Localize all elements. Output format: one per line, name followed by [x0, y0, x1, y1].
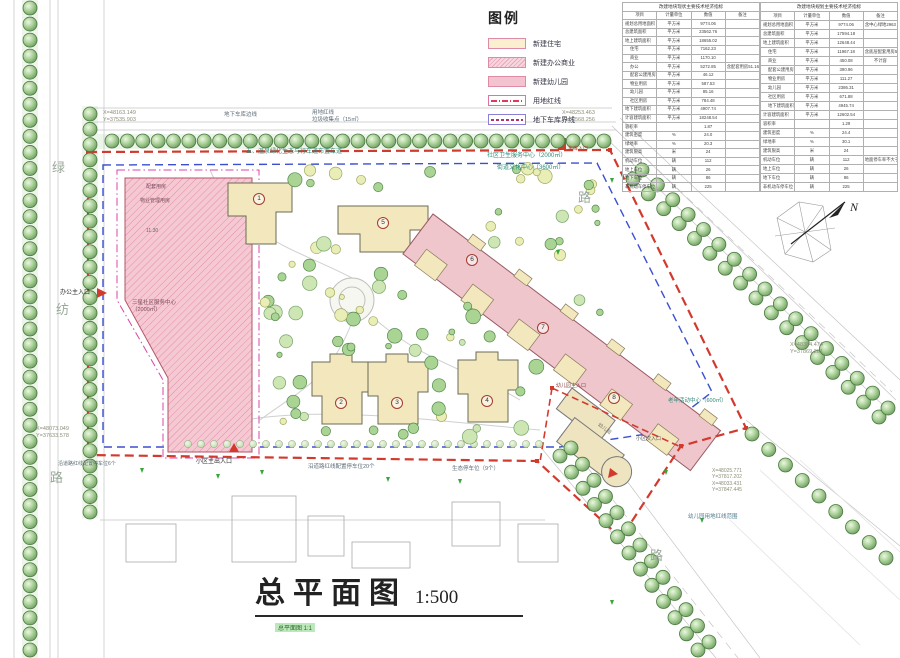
- building-number: 5: [377, 217, 389, 229]
- building-number: 7: [537, 322, 549, 334]
- legend: 图例 新建住宅 新建办公商业 新建幼儿园 用地红线 地下车库界线: [488, 8, 618, 129]
- health-center-label: 社区卫生服务中心（2000㎡）: [487, 153, 566, 161]
- culture-center-label: 街道文化中心（3600㎡）: [497, 165, 564, 173]
- road-name-char: 绿: [52, 160, 65, 176]
- neighbour-buildings: [126, 496, 558, 568]
- office-swatch: [488, 57, 526, 68]
- drawing-title-block: 总平面图 1:500 总平面图 1:1: [255, 568, 535, 635]
- redline-swatch: [488, 95, 526, 106]
- legend-label: 新建住宅: [533, 39, 561, 49]
- coordinate-label: X=48163.149 Y=37535.903: [103, 110, 136, 124]
- elderly-center-label: 老年活动中心（600㎡）: [668, 398, 727, 405]
- building-number: 4: [481, 395, 493, 407]
- building-number: 2: [335, 397, 347, 409]
- indicator-table-existing: 改建地块现状主要技术经济指标项目计量单位数值备注规划总用地面积平方米9774.0…: [622, 2, 760, 192]
- kindergarten-redline-label: 幼儿园用地红线范围: [688, 514, 738, 521]
- kindergarten-entry-label: 幼儿园主入口: [556, 383, 586, 389]
- legend-item-kindergarten: 新建幼儿园: [488, 72, 618, 91]
- drawing-title: 总平面图: [255, 568, 407, 612]
- building-number: 8: [608, 392, 620, 404]
- building-number: 6: [466, 254, 478, 266]
- office-entry-label: 办公主入口: [60, 290, 90, 298]
- coordinate-label: X=48384.474 Y=37869.261: [790, 342, 823, 356]
- side-entry-label: 小区次入口: [636, 436, 661, 442]
- parking6-label: 沿道路红线配置停车位6个: [58, 461, 116, 467]
- fire-lane-note: 五、温泉绿化生态与行车道布置车道: [246, 149, 342, 157]
- north-arrow: [775, 202, 845, 262]
- road-name-char: 路: [650, 548, 663, 564]
- residential-swatch: [488, 38, 526, 49]
- community-center-label: 三星社区服务中心 （2000㎡）: [132, 300, 176, 314]
- hatch-texture: [730, 460, 900, 645]
- legend-label: 新建办公商业: [533, 58, 575, 68]
- elevation-number: 11.30: [146, 228, 158, 234]
- legend-item-redline: 用地红线: [488, 91, 618, 110]
- legend-item-garage: 地下车库界线: [488, 110, 618, 129]
- property-room-label: 物业管理用房: [140, 198, 170, 204]
- kindergarten-swatch: [488, 76, 526, 87]
- building-number: 1: [253, 193, 265, 205]
- office-room-label: 配套用房: [146, 184, 166, 190]
- coordinate-label: X=48253.463 Y=37568.256: [562, 110, 595, 124]
- garage-entry-label: 车库入口: [568, 146, 588, 152]
- road-name-char: 纺: [56, 302, 69, 318]
- legend-item-residential: 新建住宅: [488, 34, 618, 53]
- drawing-subtitle: 总平面图 1:1: [275, 623, 315, 632]
- road-name-char: 路: [50, 470, 63, 486]
- north-label: N: [850, 200, 858, 215]
- site-plan-sheet: 图例 新建住宅 新建办公商业 新建幼儿园 用地红线 地下车库界线 改建地块现状主…: [0, 0, 900, 658]
- garage-line-swatch: [488, 114, 526, 125]
- legend-label: 新建幼儿园: [533, 77, 568, 87]
- indicator-table-planned: 改建地块规划主要技术经济指标项目计量单位数值备注规划总用地面积平方米9774.0…: [760, 2, 898, 192]
- redline-garbage-label: 用地红线 垃圾收集点（15㎡）: [312, 110, 362, 124]
- indicator-tables: 改建地块现状主要技术经济指标项目计量单位数值备注规划总用地面积平方米9774.0…: [622, 2, 898, 192]
- coordinate-label: X=48025.771 Y=37817.202 X=48033.431 Y=37…: [712, 468, 742, 493]
- road-name-char: 路: [578, 190, 591, 206]
- main-entry-label: 小区主出入口: [196, 459, 232, 467]
- office-commercial-building: [125, 178, 252, 452]
- legend-label: 用地红线: [533, 96, 561, 106]
- eco-parking-label: 生态停车位（9个）: [452, 466, 499, 473]
- legend-item-office: 新建办公商业: [488, 53, 618, 72]
- legend-title: 图例: [488, 8, 618, 28]
- building-number: 3: [391, 397, 403, 409]
- title-underline: [255, 615, 523, 617]
- parking20-label: 沿道路红线配置停车位20个: [308, 464, 375, 471]
- drawing-scale: 1:500: [415, 587, 458, 609]
- coordinate-label: X=48073.049 Y=37633.578: [36, 426, 69, 440]
- garage-edge-label: 地下车库边线: [224, 112, 257, 119]
